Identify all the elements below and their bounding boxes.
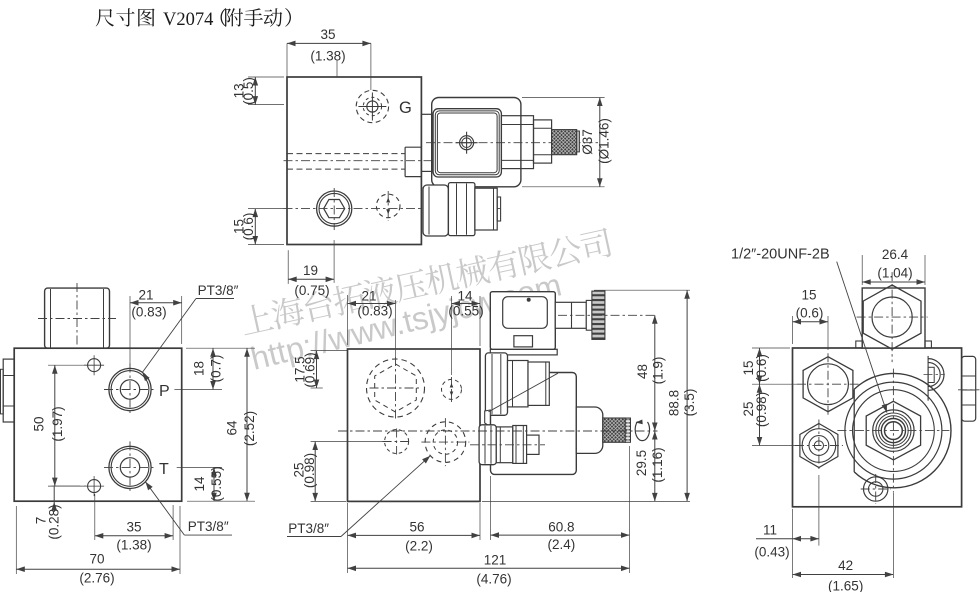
svg-text:(0.55): (0.55) (448, 304, 483, 319)
svg-text:(0.98): (0.98) (302, 453, 317, 488)
svg-text:(1.65): (1.65) (828, 579, 863, 593)
svg-text:(0.28): (0.28) (47, 504, 62, 539)
svg-text:PT3/8″: PT3/8″ (188, 519, 229, 534)
svg-text:56: 56 (409, 520, 424, 535)
svg-text:(0.75): (0.75) (294, 283, 329, 298)
svg-text:15: 15 (801, 288, 816, 303)
svg-text:48: 48 (635, 364, 650, 379)
svg-text:(1.38): (1.38) (116, 538, 151, 553)
svg-text:(0.55): (0.55) (209, 466, 224, 501)
svg-text:14: 14 (192, 476, 207, 492)
svg-text:50: 50 (31, 416, 46, 431)
svg-text:(0.7): (0.7) (208, 355, 223, 383)
svg-text:121: 121 (484, 553, 507, 568)
svg-text:(0.6): (0.6) (754, 354, 769, 382)
svg-text:(2.76): (2.76) (79, 571, 114, 586)
svg-text:(0.69): (0.69) (303, 352, 318, 387)
svg-text:35: 35 (320, 27, 335, 42)
svg-text:1/2″-20UNF-2B: 1/2″-20UNF-2B (731, 247, 830, 263)
svg-text:P: P (159, 383, 170, 400)
svg-text:60.8: 60.8 (548, 520, 574, 535)
svg-text:26.4: 26.4 (882, 247, 909, 262)
svg-text:(0.83): (0.83) (357, 304, 392, 319)
svg-text:70: 70 (89, 552, 104, 567)
svg-text:(1.04): (1.04) (877, 266, 912, 281)
svg-text:35: 35 (126, 520, 141, 535)
svg-text:(Ø1.46): (Ø1.46) (596, 118, 611, 164)
svg-text:Ø37: Ø37 (580, 129, 595, 155)
svg-text:(1.9): (1.9) (650, 357, 665, 385)
svg-text:(2.2): (2.2) (405, 539, 433, 554)
svg-text:29.5: 29.5 (634, 450, 649, 476)
svg-text:88.8: 88.8 (666, 390, 681, 416)
svg-text:(1.16): (1.16) (650, 447, 665, 482)
svg-text:19: 19 (303, 263, 318, 278)
svg-text:(0.83): (0.83) (131, 305, 166, 320)
svg-text:(1.38): (1.38) (310, 49, 345, 64)
svg-text:21: 21 (138, 288, 153, 303)
svg-text:PT3/8″: PT3/8″ (288, 521, 329, 536)
svg-text:(0.6): (0.6) (241, 213, 256, 241)
svg-text:(2.4): (2.4) (548, 537, 576, 552)
svg-text:G: G (399, 99, 412, 117)
svg-text:V2074: V2074 (163, 10, 213, 30)
svg-text:42: 42 (838, 558, 853, 573)
svg-text:(3.5): (3.5) (682, 389, 697, 417)
svg-text:(2.52): (2.52) (242, 411, 257, 446)
svg-text:(0.6): (0.6) (796, 306, 824, 321)
svg-text:14: 14 (457, 289, 473, 304)
svg-text:(0.43): (0.43) (754, 545, 789, 560)
svg-text:(0.98): (0.98) (754, 392, 769, 427)
svg-text:T: T (159, 461, 169, 478)
svg-text:21: 21 (361, 289, 376, 304)
svg-text:11: 11 (763, 523, 777, 538)
svg-text:(1.97): (1.97) (50, 406, 65, 441)
svg-text:18: 18 (192, 361, 207, 376)
svg-text:64: 64 (225, 420, 240, 436)
svg-text:(4.76): (4.76) (476, 572, 511, 587)
svg-text:PT3/8″: PT3/8″ (198, 283, 239, 298)
svg-text:(0.5): (0.5) (241, 77, 256, 105)
